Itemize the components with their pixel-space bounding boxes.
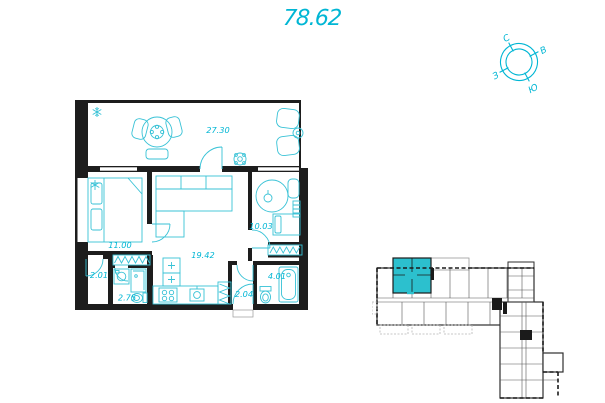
compass-icon: С В Ю З bbox=[486, 26, 556, 96]
wardrobe-icon bbox=[113, 255, 150, 265]
building-wing bbox=[500, 302, 543, 398]
double-bed-icon bbox=[88, 178, 142, 242]
lounge-armchairs bbox=[276, 108, 303, 157]
kitchen-counter bbox=[153, 286, 218, 304]
stove-icon bbox=[159, 288, 177, 302]
room-area-label: 2.75 bbox=[118, 293, 136, 303]
armchair-icon bbox=[276, 108, 300, 130]
walls bbox=[75, 100, 308, 317]
entrance-opening bbox=[233, 304, 253, 311]
toilet-icon bbox=[260, 287, 271, 304]
room-area-label: 2.04 bbox=[235, 289, 253, 299]
plant-icon bbox=[293, 128, 303, 138]
door-shower-icon bbox=[115, 268, 128, 281]
building-annex bbox=[543, 353, 563, 372]
kitchen-living-room: 19.42 bbox=[153, 176, 232, 304]
room-area-label: 27.30 bbox=[206, 125, 229, 135]
room-area-label: 2.01 bbox=[90, 270, 108, 280]
compass-south-label: Ю bbox=[527, 83, 541, 96]
bench-icon bbox=[146, 149, 168, 159]
shower-icon bbox=[131, 269, 146, 292]
bathroom: 4.01 bbox=[260, 267, 298, 303]
window-living-top bbox=[88, 100, 301, 103]
chair-icon bbox=[165, 116, 183, 139]
compass-inner-ring bbox=[501, 44, 536, 79]
compass-east-label: В bbox=[539, 45, 549, 57]
door-living-icon bbox=[200, 147, 222, 169]
wardrobe-icon bbox=[268, 245, 302, 255]
chair-icon bbox=[131, 118, 149, 141]
plant-icon bbox=[234, 153, 246, 165]
door-bedroom-icon bbox=[152, 224, 170, 242]
door-bedroom2-icon bbox=[252, 230, 270, 248]
round-table-icon bbox=[256, 180, 288, 212]
living-room: 27.30 bbox=[93, 107, 303, 165]
floor-plan-page: 78.62 С В Ю З bbox=[0, 0, 605, 403]
window-living-right bbox=[299, 103, 301, 168]
apartment-total-area: 78.62 bbox=[282, 6, 342, 31]
window-bedroom bbox=[78, 178, 89, 242]
room-area-label: 10.03 bbox=[249, 221, 272, 231]
snowflake-icon bbox=[93, 107, 102, 117]
armchair-icon bbox=[288, 179, 299, 198]
hall: 2.01 bbox=[90, 270, 108, 280]
door-entryhall-icon bbox=[237, 265, 253, 281]
compass-north-label: С bbox=[502, 33, 513, 45]
shower-room: 2.75 bbox=[114, 269, 147, 303]
snowflake-icon bbox=[91, 180, 100, 190]
shelf-icon bbox=[293, 201, 300, 217]
fridge-icon bbox=[163, 258, 180, 286]
selected-unit-highlight[interactable] bbox=[393, 258, 431, 294]
room-area-label: 4.01 bbox=[268, 271, 286, 281]
sofa-icon bbox=[156, 176, 232, 237]
floor-plan: 27.30 11.00 bbox=[70, 95, 315, 325]
building-location-plan bbox=[372, 246, 604, 402]
room-area-label: 19.42 bbox=[191, 250, 214, 260]
compass-ticks bbox=[489, 32, 549, 92]
washing-machine-icon bbox=[114, 269, 129, 284]
entrance-porch bbox=[233, 310, 253, 317]
entry-hall: 2.04 bbox=[235, 289, 253, 299]
room-area-label: 11.00 bbox=[108, 240, 131, 250]
bedroom: 11.00 bbox=[88, 178, 142, 250]
compass-outer-ring bbox=[494, 37, 544, 87]
sink-icon bbox=[190, 287, 204, 302]
